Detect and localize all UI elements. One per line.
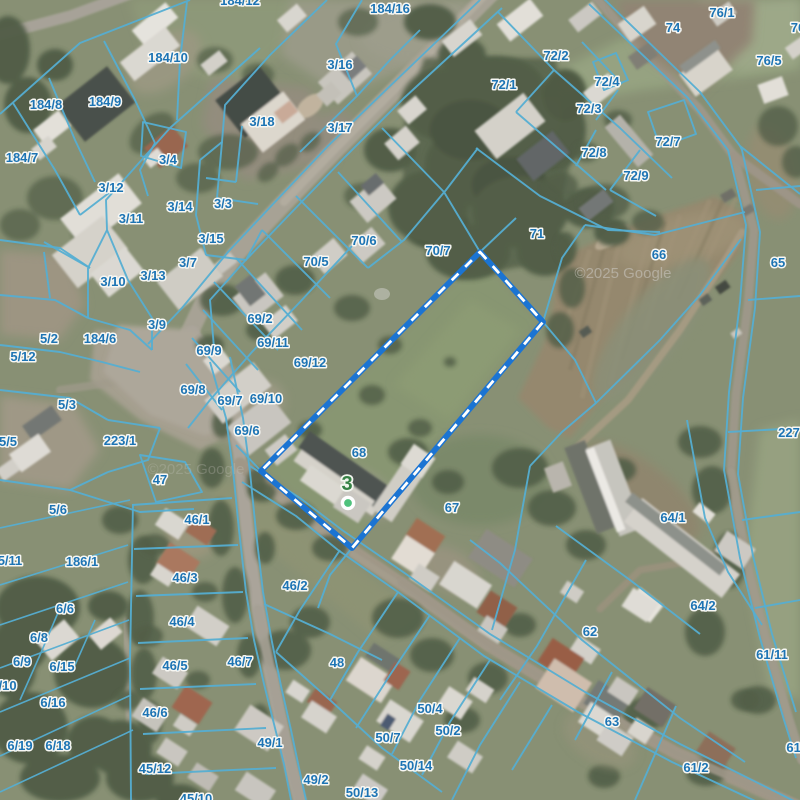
svg-text:5/5: 5/5 <box>0 434 17 449</box>
svg-text:63: 63 <box>605 714 619 729</box>
svg-text:6/10: 6/10 <box>0 678 17 693</box>
svg-text:3/18: 3/18 <box>249 114 274 129</box>
svg-text:3/17: 3/17 <box>327 120 352 135</box>
svg-text:72/4: 72/4 <box>594 74 620 89</box>
svg-text:46/6: 46/6 <box>142 705 167 720</box>
svg-text:3/4: 3/4 <box>159 152 178 167</box>
svg-text:72/2: 72/2 <box>543 48 568 63</box>
svg-text:70/6: 70/6 <box>351 233 376 248</box>
svg-text:45/12: 45/12 <box>139 761 172 776</box>
svg-text:47: 47 <box>153 472 167 487</box>
svg-text:69/8: 69/8 <box>180 382 205 397</box>
svg-text:64/2: 64/2 <box>690 598 715 613</box>
svg-text:72/7: 72/7 <box>655 134 680 149</box>
svg-text:49/2: 49/2 <box>303 772 328 787</box>
svg-text:184/6: 184/6 <box>84 331 117 346</box>
svg-text:76/5: 76/5 <box>756 53 781 68</box>
svg-text:3/10: 3/10 <box>100 274 125 289</box>
svg-text:227: 227 <box>778 425 800 440</box>
svg-text:6/19: 6/19 <box>7 738 32 753</box>
svg-text:3/3: 3/3 <box>214 196 232 211</box>
svg-text:49/1: 49/1 <box>257 735 282 750</box>
svg-text:66: 66 <box>652 247 666 262</box>
svg-text:46/1: 46/1 <box>184 512 209 527</box>
svg-text:3/16: 3/16 <box>327 57 352 72</box>
svg-text:76: 76 <box>791 20 800 35</box>
svg-text:69/7: 69/7 <box>217 393 242 408</box>
svg-text:46/2: 46/2 <box>282 578 307 593</box>
svg-text:6/8: 6/8 <box>30 630 48 645</box>
svg-text:184/8: 184/8 <box>30 97 63 112</box>
svg-text:70/5: 70/5 <box>303 254 328 269</box>
svg-text:3/9: 3/9 <box>148 317 166 332</box>
svg-text:74: 74 <box>666 20 681 35</box>
svg-text:61/1: 61/1 <box>786 740 800 755</box>
svg-text:3/12: 3/12 <box>98 180 123 195</box>
svg-text:©2025 Google: ©2025 Google <box>575 265 672 282</box>
svg-text:70/7: 70/7 <box>425 243 450 258</box>
svg-text:184/16: 184/16 <box>370 1 410 16</box>
svg-text:3/11: 3/11 <box>119 211 144 226</box>
svg-text:50/14: 50/14 <box>400 758 433 773</box>
svg-text:68: 68 <box>352 445 366 460</box>
svg-text:72/9: 72/9 <box>623 168 648 183</box>
svg-text:6/18: 6/18 <box>45 738 70 753</box>
svg-text:5/12: 5/12 <box>10 349 35 364</box>
svg-text:3/14: 3/14 <box>167 199 193 214</box>
svg-text:6/16: 6/16 <box>40 695 65 710</box>
svg-text:69/9: 69/9 <box>196 343 221 358</box>
svg-text:72/8: 72/8 <box>581 145 606 160</box>
svg-text:76/1: 76/1 <box>709 5 734 20</box>
svg-text:46/4: 46/4 <box>169 614 195 629</box>
svg-text:46/5: 46/5 <box>162 658 187 673</box>
svg-text:50/4: 50/4 <box>417 701 443 716</box>
svg-text:61/11: 61/11 <box>756 647 788 662</box>
svg-text:45/10: 45/10 <box>180 791 213 800</box>
svg-text:5/3: 5/3 <box>58 397 76 412</box>
svg-text:48: 48 <box>330 655 344 670</box>
svg-text:61/2: 61/2 <box>683 760 708 775</box>
svg-text:6/9: 6/9 <box>13 654 31 669</box>
svg-text:69/11: 69/11 <box>257 335 289 350</box>
svg-text:69/6: 69/6 <box>234 423 259 438</box>
svg-text:64/1: 64/1 <box>660 510 685 525</box>
svg-text:50/2: 50/2 <box>435 723 460 738</box>
svg-text:72/3: 72/3 <box>576 101 601 116</box>
svg-text:6/15: 6/15 <box>49 659 74 674</box>
svg-text:46/7: 46/7 <box>227 654 252 669</box>
svg-text:184/7: 184/7 <box>6 150 39 165</box>
svg-text:3: 3 <box>341 473 352 495</box>
svg-text:65: 65 <box>771 255 785 270</box>
svg-text:6/6: 6/6 <box>56 601 74 616</box>
svg-text:184/10: 184/10 <box>148 50 188 65</box>
svg-text:50/13: 50/13 <box>346 785 379 800</box>
svg-text:186/1: 186/1 <box>66 554 99 569</box>
svg-text:5/11: 5/11 <box>0 553 22 568</box>
svg-text:223/1: 223/1 <box>104 433 137 448</box>
svg-text:5/6: 5/6 <box>49 502 67 517</box>
svg-text:69/2: 69/2 <box>247 311 272 326</box>
svg-text:62: 62 <box>583 624 597 639</box>
svg-text:71: 71 <box>530 226 544 241</box>
svg-text:50/7: 50/7 <box>375 730 400 745</box>
svg-text:3/13: 3/13 <box>140 268 165 283</box>
svg-text:3/7: 3/7 <box>179 255 197 270</box>
svg-text:72/1: 72/1 <box>491 77 516 92</box>
svg-text:5/2: 5/2 <box>40 331 58 346</box>
svg-text:67: 67 <box>445 500 459 515</box>
svg-text:184/9: 184/9 <box>89 94 122 109</box>
svg-text:69/12: 69/12 <box>294 355 327 370</box>
svg-text:46/3: 46/3 <box>172 570 197 585</box>
svg-text:184/12: 184/12 <box>220 0 260 8</box>
svg-text:3/15: 3/15 <box>198 231 223 246</box>
svg-text:69/10: 69/10 <box>250 391 283 406</box>
